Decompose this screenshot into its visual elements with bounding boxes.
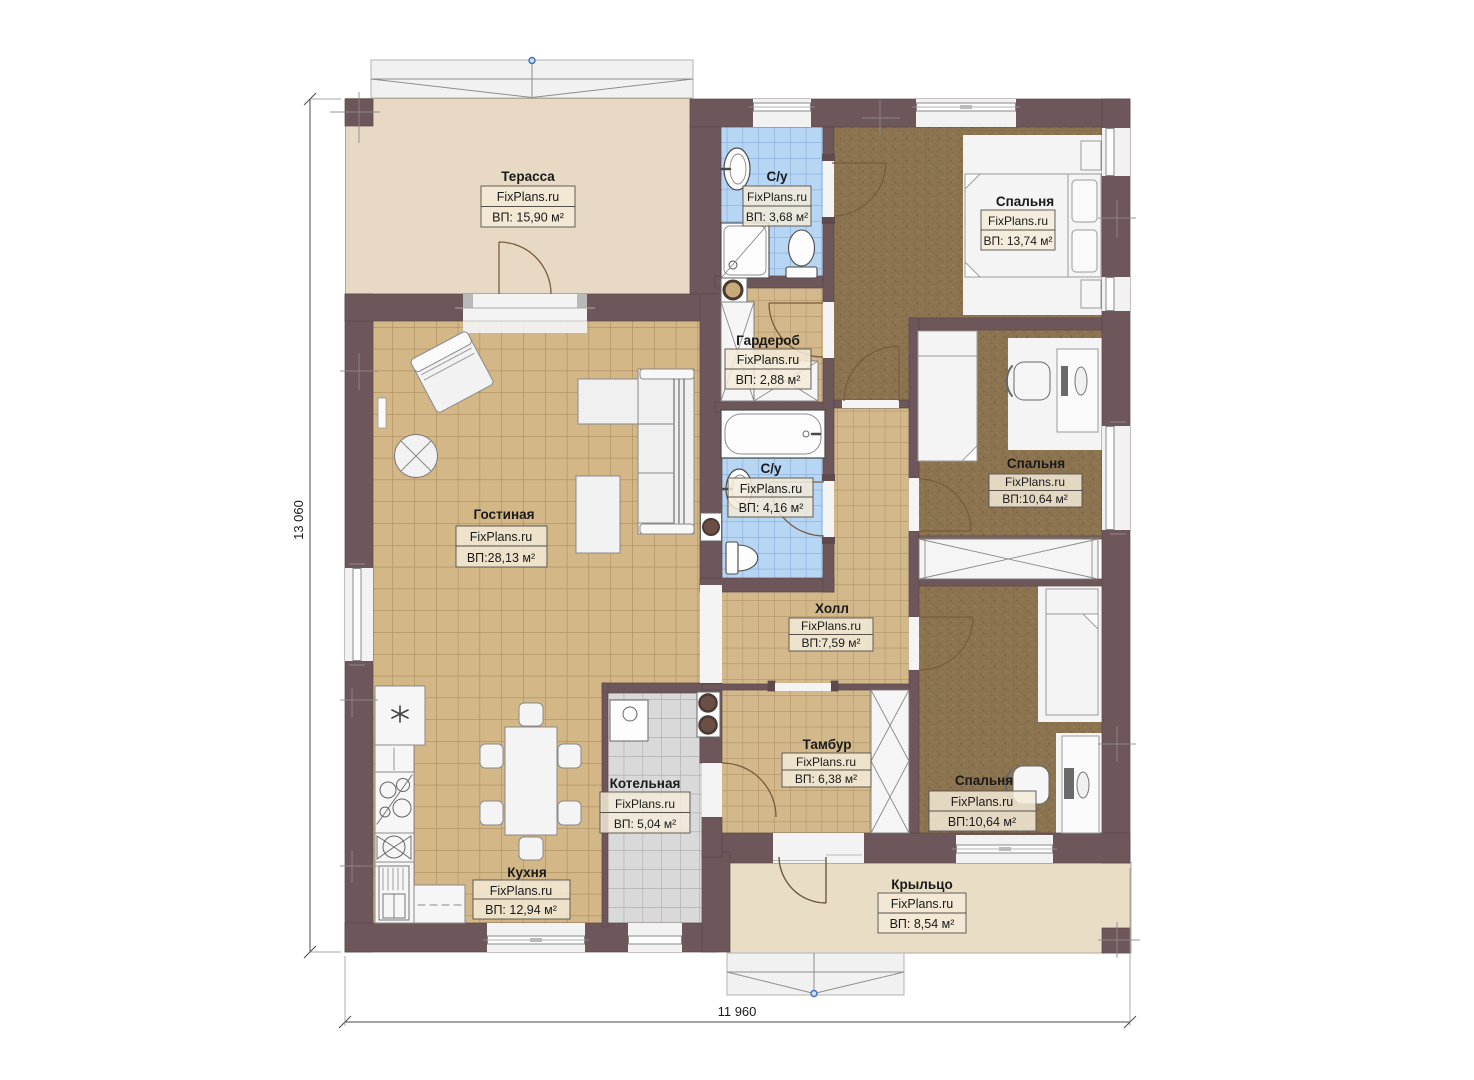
svg-text:ВП: 6,38 м²: ВП: 6,38 м² <box>795 772 857 786</box>
svg-text:FixPlans.ru: FixPlans.ru <box>470 530 533 544</box>
svg-text:Кухня: Кухня <box>507 865 546 880</box>
svg-text:FixPlans.ru: FixPlans.ru <box>615 797 675 811</box>
svg-text:ВП: 15,90 м²: ВП: 15,90 м² <box>492 211 564 225</box>
svg-text:Терасса: Терасса <box>501 169 555 184</box>
svg-text:FixPlans.ru: FixPlans.ru <box>747 190 807 204</box>
svg-text:Холл: Холл <box>815 601 849 616</box>
svg-text:FixPlans.ru: FixPlans.ru <box>951 795 1014 809</box>
svg-text:Гардероб: Гардероб <box>736 333 800 348</box>
svg-text:Котельная: Котельная <box>610 776 681 791</box>
svg-text:С/у: С/у <box>760 461 782 476</box>
svg-text:ВП:10,64 м²: ВП:10,64 м² <box>948 815 1016 829</box>
svg-text:С/у: С/у <box>766 169 788 184</box>
svg-text:FixPlans.ru: FixPlans.ru <box>1005 475 1065 489</box>
svg-text:ВП:28,13 м²: ВП:28,13 м² <box>467 551 535 565</box>
svg-text:ВП: 3,68 м²: ВП: 3,68 м² <box>746 210 808 224</box>
svg-text:Спальня: Спальня <box>996 194 1054 209</box>
svg-text:ВП: 8,54 м²: ВП: 8,54 м² <box>890 917 955 931</box>
svg-text:FixPlans.ru: FixPlans.ru <box>801 619 861 633</box>
svg-text:FixPlans.ru: FixPlans.ru <box>891 897 954 911</box>
svg-text:FixPlans.ru: FixPlans.ru <box>796 755 856 769</box>
svg-text:Крыльцо: Крыльцо <box>891 877 952 892</box>
svg-text:ВП: 13,74 м²: ВП: 13,74 м² <box>984 234 1053 248</box>
svg-text:ВП: 2,88 м²: ВП: 2,88 м² <box>736 373 801 387</box>
svg-text:ВП: 5,04 м²: ВП: 5,04 м² <box>614 817 676 831</box>
svg-text:FixPlans.ru: FixPlans.ru <box>988 214 1048 228</box>
svg-text:Спальня: Спальня <box>1007 456 1065 471</box>
svg-text:Гостиная: Гостиная <box>473 507 534 522</box>
svg-text:11 960: 11 960 <box>718 1004 757 1019</box>
svg-text:FixPlans.ru: FixPlans.ru <box>740 482 803 496</box>
svg-text:Тамбур: Тамбур <box>803 737 852 752</box>
svg-text:Спальня: Спальня <box>955 773 1013 788</box>
svg-text:FixPlans.ru: FixPlans.ru <box>490 884 553 898</box>
svg-text:FixPlans.ru: FixPlans.ru <box>737 353 800 367</box>
svg-text:ВП:10,64 м²: ВП:10,64 м² <box>1002 492 1068 506</box>
svg-text:ВП:7,59 м²: ВП:7,59 м² <box>802 636 861 650</box>
svg-text:FixPlans.ru: FixPlans.ru <box>497 190 560 204</box>
svg-text:ВП: 4,16 м²: ВП: 4,16 м² <box>739 501 804 515</box>
svg-text:13 060: 13 060 <box>291 500 306 540</box>
svg-text:ВП: 12,94 м²: ВП: 12,94 м² <box>485 903 557 917</box>
